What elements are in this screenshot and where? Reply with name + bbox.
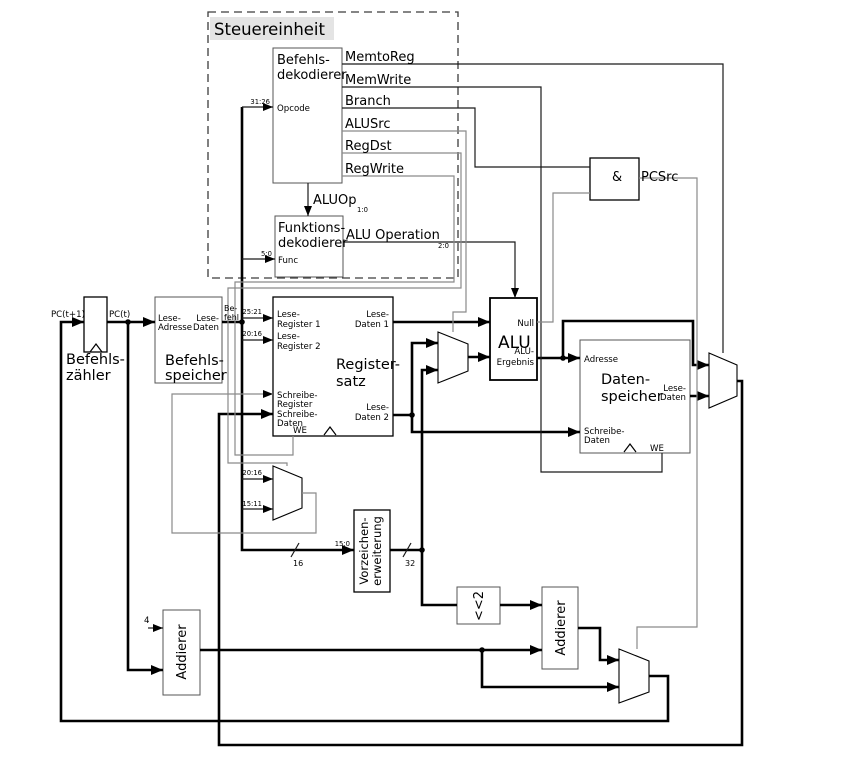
instruction-bus-label: Be- — [224, 304, 237, 313]
pcsrc-mux — [619, 649, 649, 703]
branch-adder-label: Addierer — [554, 600, 569, 656]
opcode-bits-label: 31:26 — [250, 98, 270, 106]
program-counter-label: zähler — [66, 368, 111, 384]
read-register2-label: Lese- — [277, 332, 300, 342]
read-data1-label: Lese- — [366, 310, 389, 320]
alu-result-label: ALU- — [514, 347, 534, 357]
func-port-label: Func — [278, 256, 298, 266]
regfile-we-label: WE — [293, 426, 307, 436]
signal-branch: Branch — [345, 94, 391, 109]
memtoreg-mux — [709, 353, 737, 408]
instruction-memory-label: speicher — [165, 368, 227, 384]
sign-extend-label: erweiterung — [370, 516, 384, 586]
pcsrc-label: PCSrc — [641, 170, 678, 185]
datapath-canvas: Steuereinheit Befehls- dekodierer Opcode… — [0, 0, 841, 783]
dmem-address-label: Adresse — [584, 355, 618, 365]
opcode-port-label: Opcode — [277, 104, 310, 114]
wire-read-data2-to-dmem — [412, 415, 580, 432]
wire-imm-to-alumux — [422, 370, 438, 550]
wire-alu-operation — [343, 242, 515, 298]
wire-imm-to-shift — [422, 550, 457, 605]
program-counter-label: Befehls- — [66, 352, 125, 368]
instruction-memory-label: Befehls- — [165, 353, 224, 369]
alu-operation-label: ALU Operation — [346, 228, 440, 243]
signal-regwrite: RegWrite — [345, 162, 404, 177]
sign-extend-label: Vorzeichen- — [357, 517, 371, 584]
aluop-bits-label: 1:0 — [357, 206, 368, 214]
alu-result-label: Ergebnis — [497, 358, 535, 368]
shift-left-label: <<2 — [472, 591, 487, 621]
dmem-we-label: WE — [650, 444, 664, 454]
increment-four-label: 4 — [144, 616, 149, 626]
alusrc-mux — [438, 332, 468, 383]
read-register1-label: Register 1 — [277, 320, 321, 330]
function-decoder-label: Funktions- — [278, 221, 345, 236]
imem-read-data-label: Daten — [193, 323, 219, 333]
instruction-decoder-label: dekodierer — [277, 68, 347, 83]
signal-memwrite: MemWrite — [345, 73, 411, 88]
instruction-bus-label: fehl — [224, 313, 239, 322]
register-file-label: satz — [336, 374, 366, 390]
read-data2-label: Daten 2 — [355, 413, 389, 423]
wire-read-data2-to-alumux — [412, 343, 438, 415]
junction-pc — [125, 319, 131, 325]
write-register-label: Register — [277, 400, 313, 410]
regdst-mux — [273, 466, 302, 520]
junction-instruction — [239, 319, 245, 325]
control-unit-title: Steuereinheit — [214, 20, 326, 39]
pc-current-label: PC(t) — [109, 310, 130, 320]
datapath-diagram: Steuereinheit Befehls- dekodierer Opcode… — [0, 0, 841, 783]
signal-alusrc: ALUSrc — [345, 117, 390, 132]
bus-width-32-label: 32 — [405, 559, 415, 568]
register-file-label: Register- — [336, 357, 400, 373]
alu-operation-bits-label: 2:0 — [438, 242, 449, 250]
data-memory-label: speicher — [601, 389, 663, 405]
read-reg1-bits-label: 25:21 — [242, 308, 262, 316]
read-register2-label: Register 2 — [277, 342, 321, 352]
wire-zero-to-and — [537, 193, 590, 322]
dmem-read-data-label: Daten — [660, 393, 686, 403]
alu-zero-label: Null — [517, 319, 534, 329]
junction-immediate — [419, 547, 425, 553]
junction-read-data2 — [409, 412, 415, 418]
and-gate-symbol: & — [612, 170, 622, 185]
junction-alu-result — [560, 355, 566, 361]
imem-read-address-label: Adresse — [158, 323, 192, 333]
read-data1-label: Daten 1 — [355, 320, 389, 330]
data-memory-label: Daten- — [601, 372, 650, 388]
func-bits-label: 5:0 — [261, 250, 272, 258]
junction-pc-plus4 — [479, 647, 485, 653]
aluop-label: ALUOp — [313, 193, 357, 208]
read-data2-label: Lese- — [366, 403, 389, 413]
signal-regdst: RegDst — [345, 139, 392, 154]
read-register1-label: Lese- — [277, 310, 300, 320]
sign-extend-bits-label: 15:0 — [335, 540, 350, 548]
function-decoder-label: dekodierer — [278, 236, 348, 251]
pc-adder-label: Addierer — [175, 624, 190, 680]
read-reg2-bits-label: 20:16 — [242, 330, 262, 338]
dmem-write-data-label: Daten — [584, 436, 610, 446]
bus-width-16-label: 16 — [293, 559, 303, 568]
signal-memtoreg: MemtoReg — [345, 50, 415, 65]
regdst-mux-1511-label: 15:11 — [242, 500, 262, 508]
pc-next-label: PC(t+1) — [51, 310, 85, 320]
regdst-mux-2016-label: 20:16 — [242, 469, 262, 477]
instruction-decoder-label: Befehls- — [277, 53, 330, 68]
wire-branch-target — [578, 628, 619, 660]
